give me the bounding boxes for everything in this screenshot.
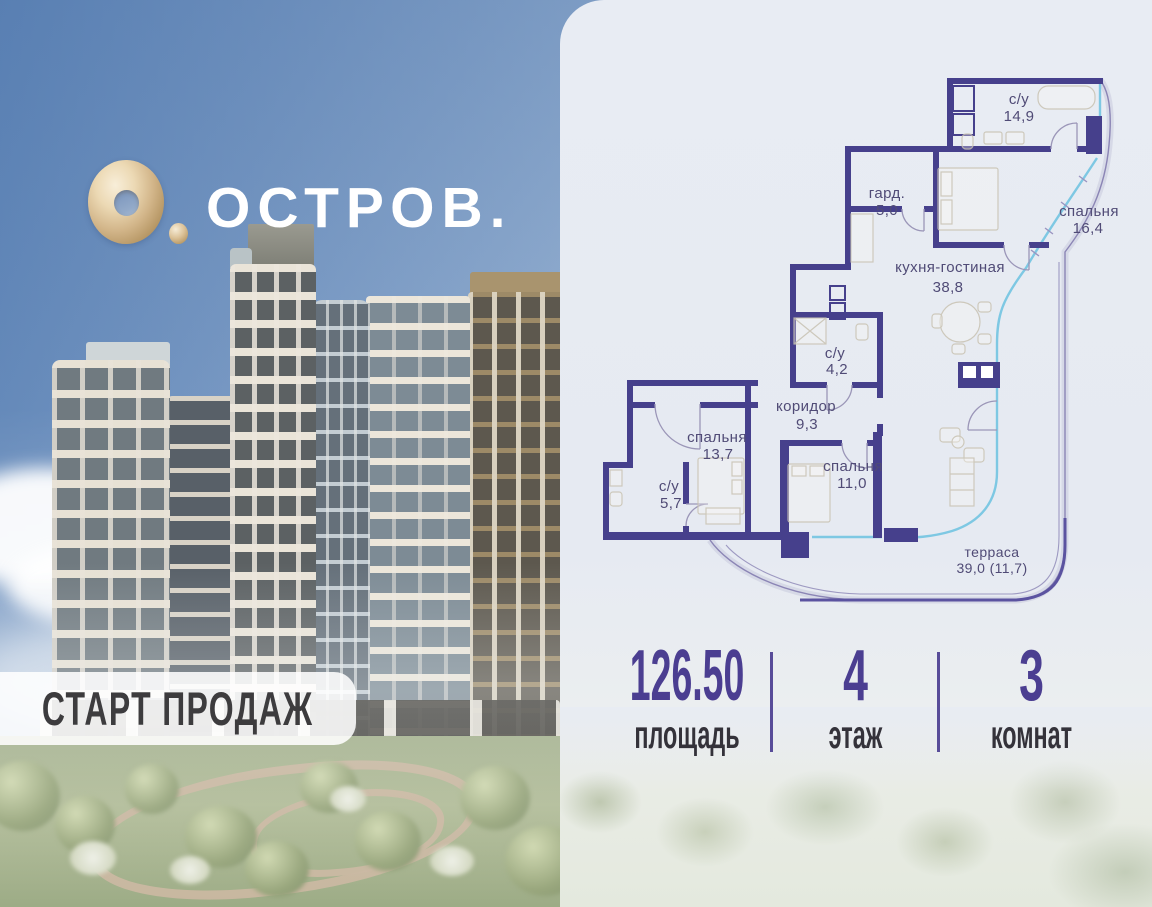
rooms-value: 3 (974, 640, 1089, 712)
brand-name: ОСТРОВ. (206, 180, 513, 237)
svg-text:39,0 (11,7): 39,0 (11,7) (956, 560, 1027, 576)
svg-text:спальня: спальня (1059, 203, 1119, 220)
logo-ring-icon (88, 160, 164, 244)
svg-text:спальня: спальня (823, 458, 883, 475)
svg-text:терраса: терраса (965, 544, 1020, 560)
svg-text:38,8: 38,8 (933, 279, 964, 296)
svg-text:гард.: гард. (869, 185, 905, 202)
svg-text:коридор: коридор (776, 398, 836, 415)
svg-text:16,4: 16,4 (1073, 220, 1104, 237)
svg-text:11,0: 11,0 (837, 475, 867, 492)
svg-text:9,3: 9,3 (796, 416, 818, 433)
svg-text:с/у: с/у (659, 478, 679, 495)
svg-text:13,7: 13,7 (703, 446, 734, 463)
sales-start-badge: СТАРТ ПРОДАЖ (0, 672, 356, 745)
svg-text:14,9: 14,9 (1004, 108, 1035, 125)
rooms-label: комнат (976, 716, 1087, 756)
svg-text:5,0: 5,0 (876, 202, 898, 219)
apartment-panel: с/у 14,9 гард. 5,0 спальня 16,4 кухня-го… (560, 0, 1152, 907)
floor-plan: с/у 14,9 гард. 5,0 спальня 16,4 кухня-го… (560, 0, 1152, 620)
stat-floor: 4 этаж (772, 640, 939, 756)
svg-text:кухня-гостиная: кухня-гостиная (895, 259, 1005, 276)
area-label: площадь (621, 716, 753, 756)
svg-text:5,7: 5,7 (660, 495, 682, 512)
svg-text:спальня: спальня (687, 429, 747, 446)
floor-label: этаж (805, 716, 905, 756)
sales-start-label: СТАРТ ПРОДАЖ (42, 681, 314, 736)
stat-rooms: 3 комнат (939, 640, 1124, 756)
listing-card[interactable]: ОСТРОВ. СТАРТ ПРОДАЖ (0, 0, 1152, 907)
floor-value: 4 (804, 640, 908, 712)
stat-area: 126.50 площадь (577, 640, 797, 756)
svg-text:с/у: с/у (1009, 91, 1029, 108)
stats-row: 126.50 площадь 4 этаж 3 комнат (560, 640, 1152, 770)
svg-text:4,2: 4,2 (826, 361, 848, 378)
terrace-outline (710, 80, 1110, 600)
svg-text:с/у: с/у (825, 345, 845, 362)
area-value: 126.50 (630, 640, 744, 712)
logo-dot-icon (169, 223, 188, 244)
